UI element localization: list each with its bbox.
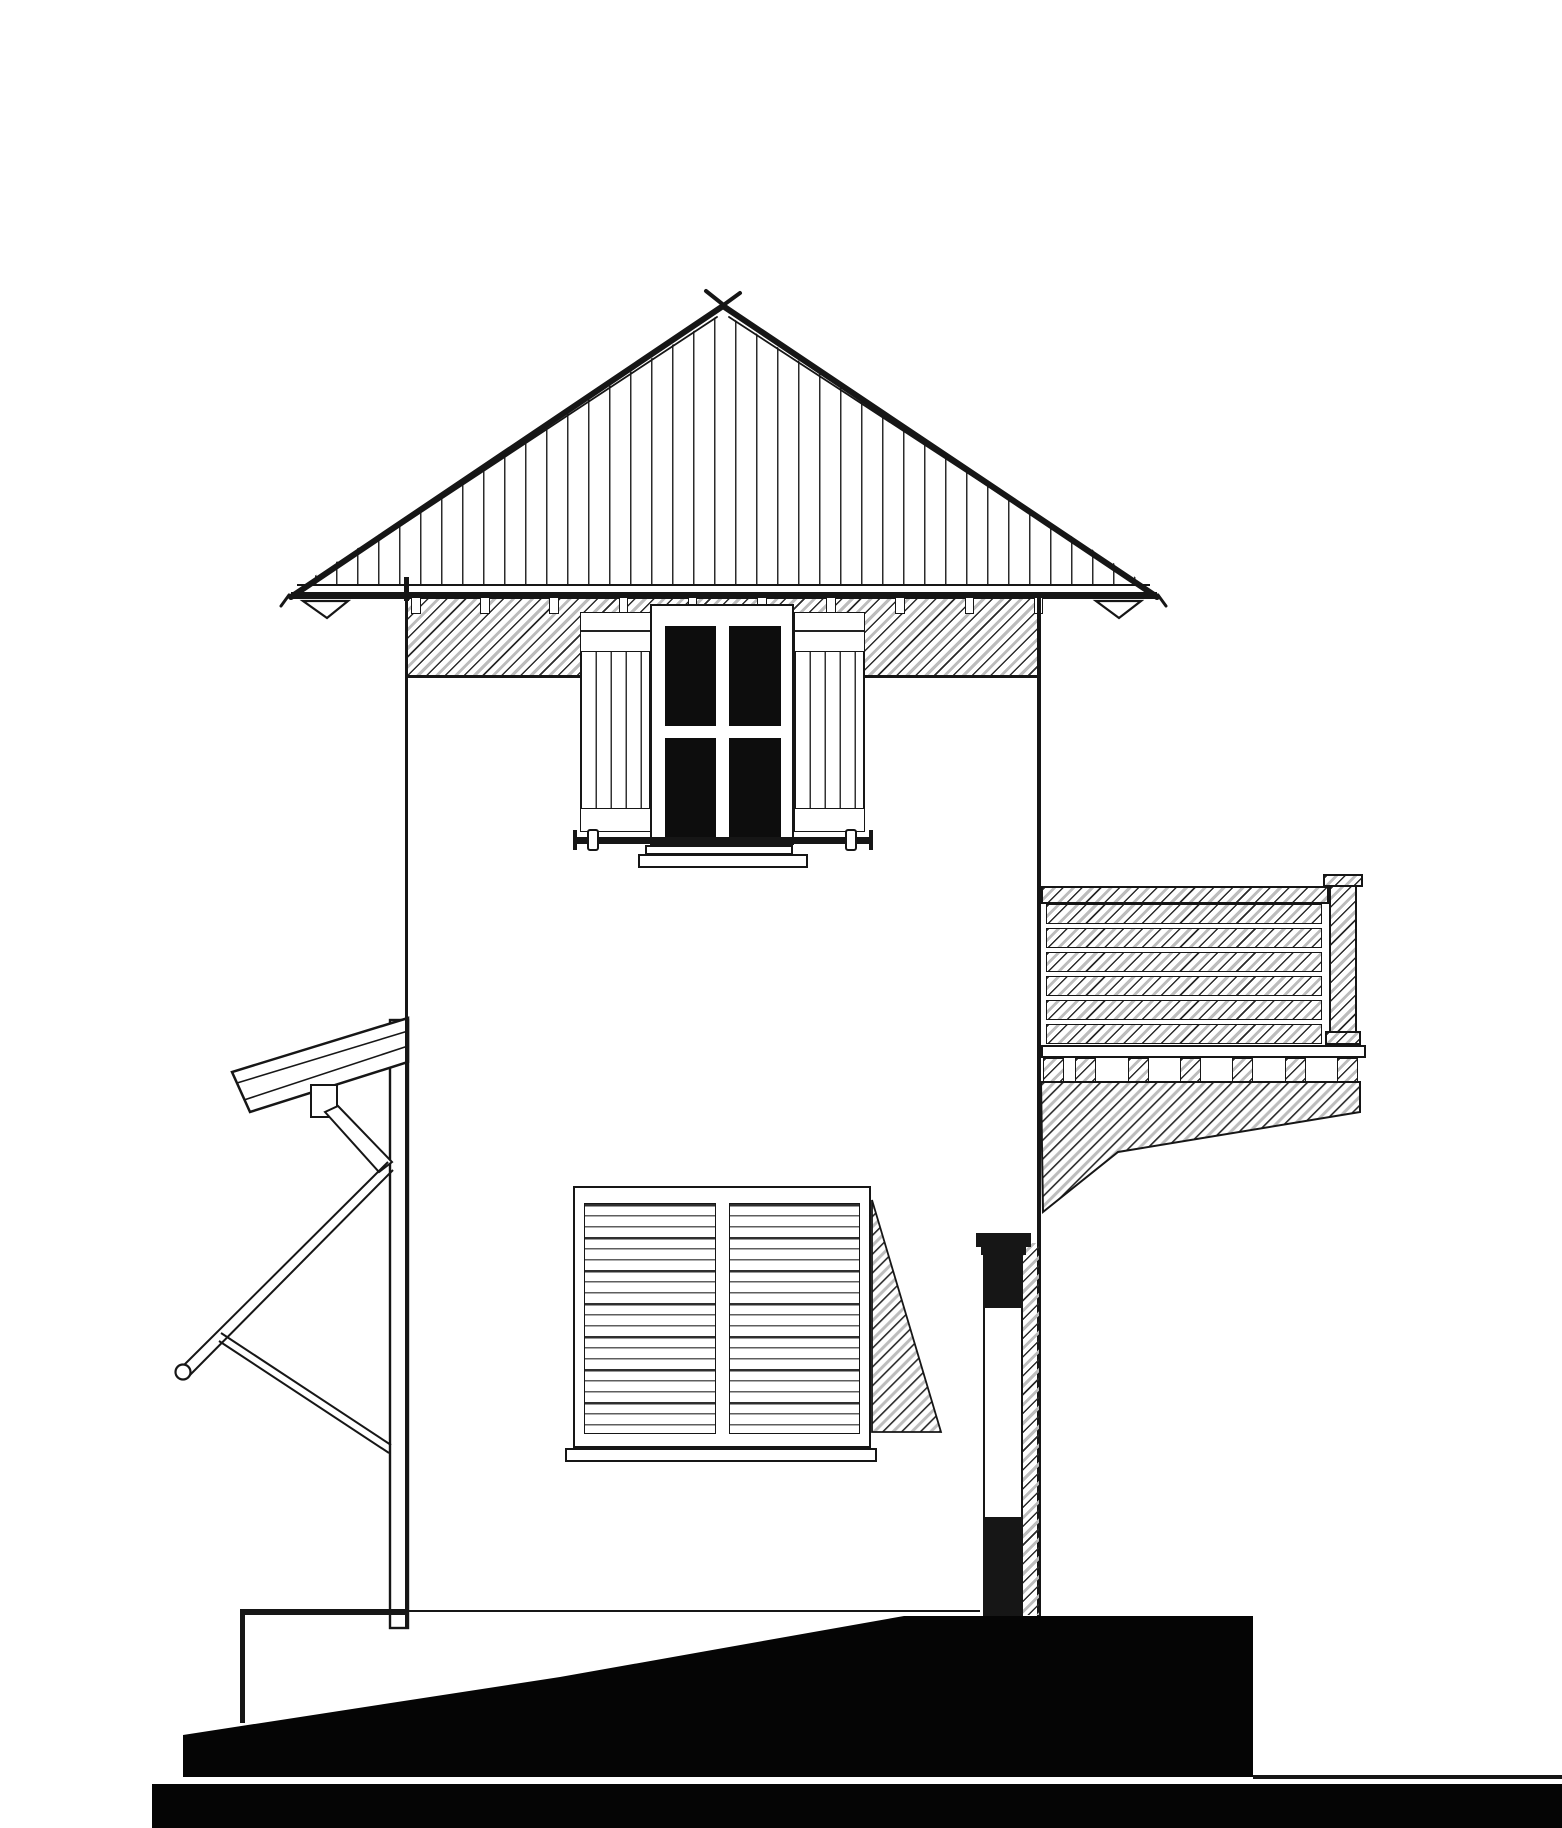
terrain-mound (183, 1616, 1253, 1777)
base-ground-strip (152, 1784, 1562, 1828)
ground-line-right (1253, 1775, 1562, 1779)
elevation-drawing (0, 0, 1562, 1828)
terrain-layer (0, 0, 1562, 1828)
